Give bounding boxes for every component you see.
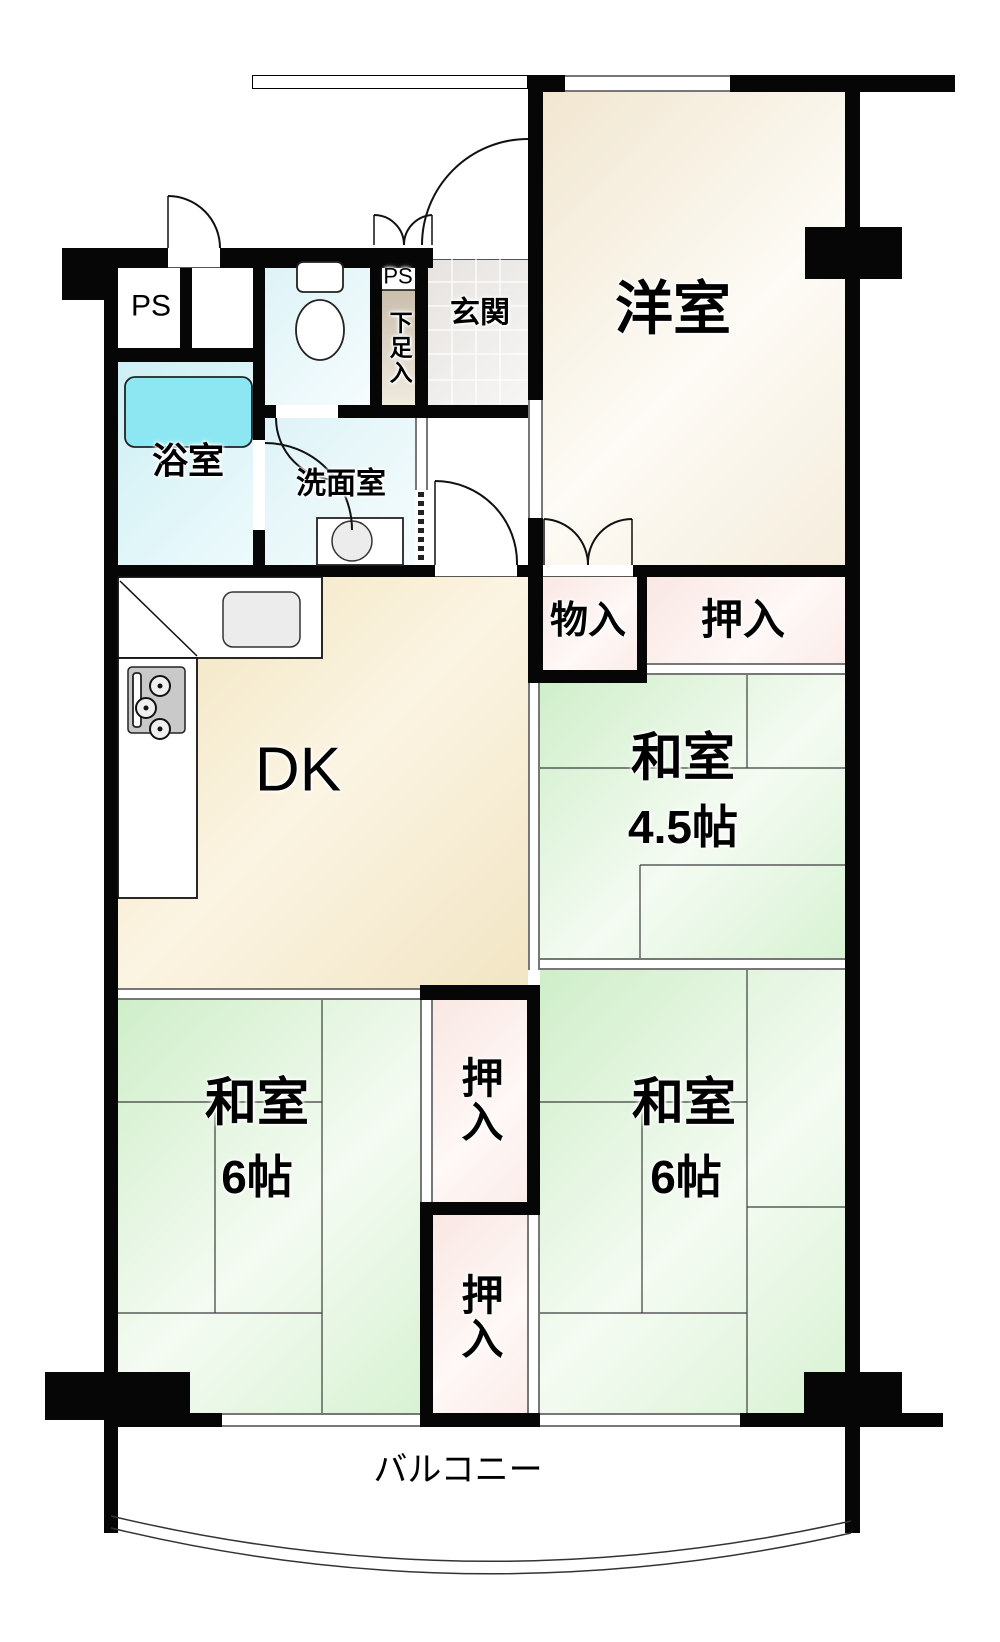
service-bifold-left bbox=[374, 215, 404, 245]
mono-bifold-right bbox=[588, 519, 632, 565]
label-entrance: 玄関 bbox=[450, 297, 510, 329]
toilet-tank bbox=[297, 262, 343, 292]
label-washroom: 洗面室 bbox=[296, 468, 386, 500]
floor-plan: PSPS下足入玄関洋室浴室洗面室物入押入和室4.5帖DK和室6帖和室6帖押入押入… bbox=[0, 0, 1000, 1642]
dk-door-arc bbox=[435, 481, 517, 565]
label-bath: 浴室 bbox=[152, 442, 224, 480]
label-ps-main: PS bbox=[131, 290, 171, 322]
label-ps-small: PS bbox=[383, 264, 412, 287]
label-wa6l-a: 和室 bbox=[205, 1077, 309, 1132]
label-wa45-b: 4.5帖 bbox=[628, 803, 738, 851]
label-wa6l-b: 6帖 bbox=[221, 1153, 293, 1201]
label-wa45-a: 和室 bbox=[631, 732, 735, 787]
label-wa6r-a: 和室 bbox=[632, 1077, 736, 1132]
burner-dot-3 bbox=[158, 727, 163, 732]
label-closet-tr: 押入 bbox=[701, 598, 785, 642]
plan-linework bbox=[0, 0, 1000, 1642]
label-shoe: 下足入 bbox=[387, 311, 411, 386]
mono-bifold-left bbox=[544, 519, 588, 565]
ps-door-arc bbox=[168, 196, 220, 248]
burner-dot-1 bbox=[158, 684, 163, 689]
label-western: 洋室 bbox=[615, 280, 731, 341]
balcony-edge-inner bbox=[111, 1528, 851, 1574]
burner-dot-2 bbox=[144, 706, 149, 711]
label-mono: 物入 bbox=[550, 602, 626, 642]
label-wa6r-b: 6帖 bbox=[650, 1153, 722, 1201]
label-closet-lo: 押入 bbox=[457, 1273, 501, 1361]
label-balcony: バルコニー bbox=[373, 1453, 542, 1489]
label-closet-up: 押入 bbox=[457, 1056, 501, 1144]
service-bifold-right bbox=[404, 215, 432, 245]
entrance-door-arc bbox=[422, 139, 528, 245]
kitchen-sink bbox=[223, 592, 300, 647]
label-dk: DK bbox=[255, 737, 341, 802]
toilet-bowl bbox=[296, 300, 344, 360]
bathtub bbox=[125, 377, 252, 447]
